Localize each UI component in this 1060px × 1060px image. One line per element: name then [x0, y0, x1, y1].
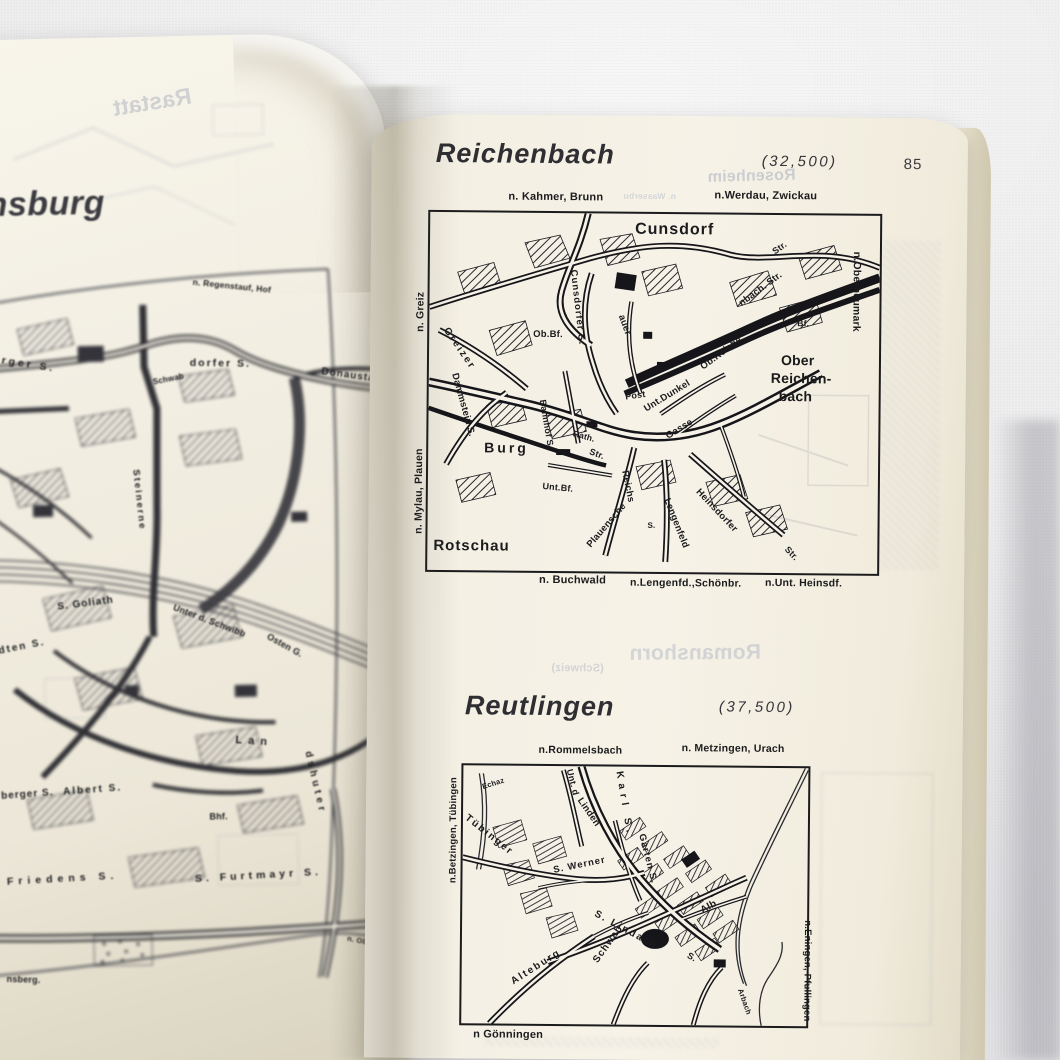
map-label: n. Wasserbu: [623, 192, 676, 201]
map-label: Schwab: [152, 373, 184, 387]
map-label: Osten G.: [265, 632, 304, 659]
map-label: Steinerne: [131, 469, 147, 531]
fabric-shadow: [994, 420, 1060, 1060]
map-label: erger S.: [0, 354, 56, 374]
map-label: berger S.: [1, 788, 54, 802]
map-label: S. Goliath: [57, 596, 114, 613]
map-label: Lan: [235, 735, 273, 748]
map-label: Unter d. Schwibb: [172, 603, 247, 639]
right-page: Reichenbach (32,500) 85: [364, 113, 968, 1060]
map-label: nsberg.: [6, 975, 40, 985]
left-page-labels: nsburgn. Regenstauf, Hoferger S.Schwabdo…: [0, 32, 405, 1060]
right-page-showthrough: Rosenheimn. Wasserbu(Schweiz)Romanshorn: [364, 113, 968, 1060]
map-label: (Schweiz): [551, 663, 604, 674]
map-label: Albert S.: [63, 783, 123, 797]
map-label: Romanshorn: [629, 642, 761, 664]
map-label: dten S.: [0, 638, 46, 657]
map-label: S. Furtmayr S.: [195, 867, 323, 885]
map-label: dorfer S.: [190, 358, 251, 369]
left-page: Rastatt: [0, 32, 405, 1060]
map-label: n. Regenstauf, Hof: [192, 278, 271, 294]
book-photo-scene: Rastatt: [0, 0, 1060, 1060]
map-label: Bhf.: [209, 812, 227, 821]
map-label: nsburg: [0, 186, 105, 222]
map-label: Rosenheim: [707, 168, 795, 186]
map-label: dshuter: [302, 750, 327, 815]
map-label: Friedens S.: [7, 871, 119, 888]
